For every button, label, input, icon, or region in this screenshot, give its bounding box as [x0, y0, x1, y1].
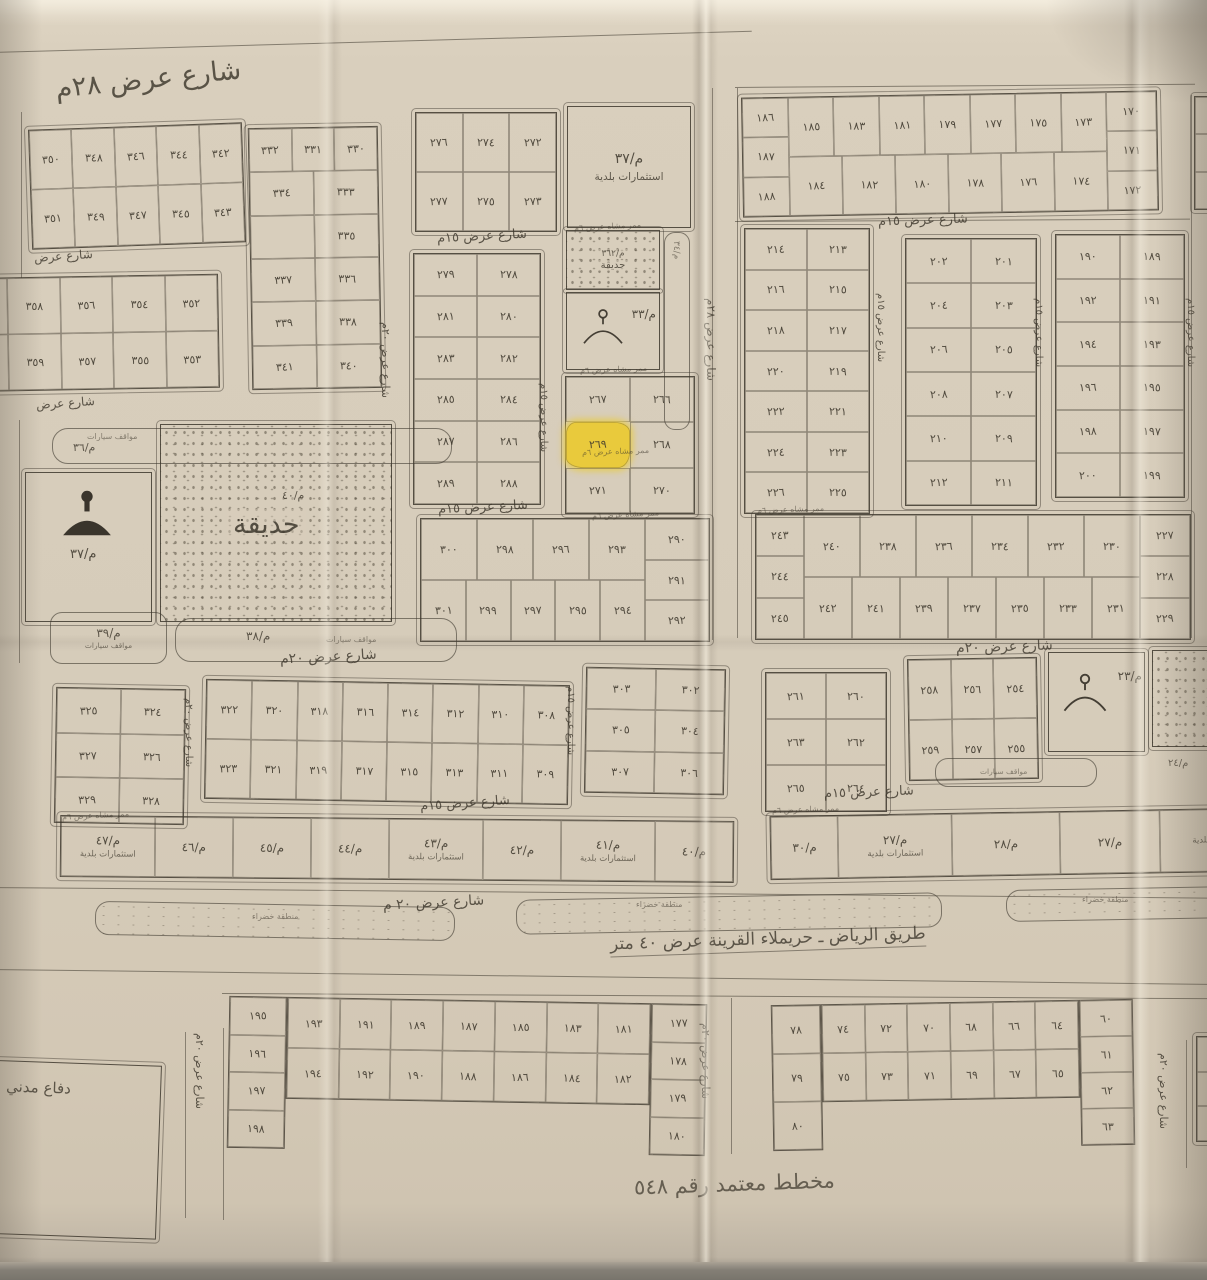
plot: ٣٠٨ [523, 685, 569, 745]
block-row: ٢٠٨٢٠٧ [906, 372, 1036, 416]
plot-number: ٢٢٤ [767, 445, 785, 459]
block-inner: ٢١٤٢١٣٢١٦٢١٥٢١٨٢١٧٢٢٠٢١٩٢٢٢٢٢١٢٢٤٢٢٣٢٢٦٢… [745, 229, 869, 513]
plot-block-edge-ne [1194, 96, 1207, 210]
block-left-col: ١٩٥١٩٦١٩٧١٩٨ [227, 996, 288, 1149]
block-row: ٣٠٥٣٠٤ [586, 709, 725, 753]
plot-number: ٢٥٧ [965, 742, 983, 755]
plot-number: ٢٦٥ [787, 781, 805, 795]
plot: ٧٢ [864, 1004, 908, 1053]
plot: ٢٦١ [766, 673, 826, 719]
block-row: ٣٠٧٣٠٦ [585, 750, 724, 794]
plot-number: ٢١٨ [767, 324, 785, 338]
plot-code: م/٣٧ [615, 151, 643, 167]
plot-number: ٣٣٣ [337, 186, 355, 199]
plot: ٣٢٦ [120, 734, 185, 780]
plot: ٣٢٤ [120, 689, 185, 735]
plot-code: م/٣٣ [632, 307, 656, 321]
plot: ٣١٨ [297, 681, 343, 741]
plot-code: م/٤٧ [96, 833, 120, 847]
plot: ٢١٤ [745, 229, 807, 270]
plot-number: ٢٢١ [829, 405, 847, 419]
plot-number: ٧١ [923, 1069, 935, 1083]
plot-number: ٢٦٣ [787, 735, 805, 749]
street-label: شارع عرض ٢٠م [699, 1023, 712, 1099]
plot: ٢١٧ [807, 310, 869, 351]
plot-number: ٣٣٠ [347, 142, 365, 156]
plot-number: ١٨٧ [757, 151, 775, 164]
block-row [1195, 172, 1207, 209]
plot: ٣٤٣ [201, 182, 245, 242]
block-center: ٢٤٠٢٣٨٢٣٦٢٣٤٢٣٢٢٣٠٢٤٢٢٤١٢٣٩٢٣٧٢٣٥٢٣٣٢٣١ [804, 515, 1140, 639]
plot-code: م/٤٦ [182, 840, 206, 854]
plot: ١٩٤ [1056, 322, 1120, 366]
block-row: ٢٤٠٢٣٨٢٣٦٢٣٤٢٣٢٢٣٠ [804, 515, 1140, 577]
plot-number: ٣٣٥ [338, 229, 356, 242]
plot-number: ٣٢٢ [220, 703, 238, 716]
plot-number: ٣٠٢ [681, 683, 699, 697]
plot: ١٩٣ [287, 998, 340, 1049]
block-row [1197, 1072, 1207, 1107]
plot-number: ١٧٨ [669, 1054, 687, 1068]
plot-number: ٣٠٠ [440, 543, 458, 557]
plot: ٢٨٤ [477, 379, 540, 421]
plot: ٣٣٩ [252, 301, 317, 345]
plot: ١٨١ [879, 95, 925, 155]
mosque-icon [577, 307, 629, 345]
plot-number: ٧٤ [837, 1022, 849, 1036]
plot: ٣٠٢ [655, 669, 725, 712]
plot-number: ٦٧ [1009, 1067, 1021, 1081]
block-row: ٣٢٧٣٢٦ [56, 733, 185, 780]
block-row: ٢٦٣٢٦٢ [766, 719, 886, 765]
plot-number: ١٧٩ [669, 1092, 687, 1105]
plot: ٦١ [1080, 1036, 1133, 1073]
strip-cell: م/٤١استثمارات بلدية [561, 820, 655, 881]
block-row: ٣٠١٢٩٩٢٩٧٢٩٥٢٩٤ [421, 580, 645, 641]
plot-number: ٢٥٨ [921, 683, 939, 697]
block-row: ٢٢٤٢٢٣ [745, 432, 869, 473]
pedestrian-path-label: ممر مشاه عرض ٦م [580, 364, 647, 375]
plot: ٣٣٢ [249, 128, 292, 172]
plot-number: ٢١٢ [929, 476, 947, 490]
plot: ٢٢٠ [745, 351, 807, 392]
street-edge-line [0, 31, 752, 53]
road-median-strip [95, 901, 456, 941]
block-inner: ٣٢٢٣٢٠٣١٨٣١٦٣١٤٣١٢٣١٠٣٠٨٣٢٣٣٢١٣١٩٣١٧٣١٥٣… [205, 680, 569, 804]
plot: ١٧٩ [924, 95, 970, 155]
plot: ٢٣٥ [996, 577, 1044, 639]
plot-block-sw-o: ٣٠٣٣٠٢٣٠٥٣٠٤٣٠٧٣٠٦ [584, 667, 726, 795]
block-row: ١٨٥١٨٣١٨١١٧٩١٧٧١٧٥١٧٣ [788, 92, 1107, 157]
plot-number: ٢٧٥ [477, 195, 495, 209]
street-edge-line [19, 420, 20, 663]
plot-number: ٢٤٤ [771, 570, 789, 584]
plot-number: ٣٤٠ [340, 359, 358, 372]
plot: ٣٢١ [250, 740, 296, 800]
plot: ١٨٣ [833, 96, 879, 156]
plot: ٢٩٥ [555, 580, 600, 641]
plot: ١٩٤ [287, 1048, 340, 1099]
block-row: ٣٣٩٣٣٨ [252, 300, 381, 346]
plot-number: ٢٢٢ [767, 405, 785, 419]
plot: ٢٩١ [645, 560, 709, 601]
plot: ٣١٥ [386, 742, 432, 802]
scanned-plan-photo: م/٣٧ استثمارات بلدية م/٣٦٢ حديقة م/٣٣ م/… [0, 0, 1207, 1280]
plot-number: ١٧٤ [1072, 175, 1090, 188]
street-label: شارع عرض ٢٨م [54, 54, 243, 104]
plot-number: ١٩٠ [407, 1068, 425, 1081]
block-center: ٣٦٠٣٥٨٣٥٦٣٥٤٣٥٢٣٦١٣٥٩٣٥٧٣٥٥٣٥٣ [0, 275, 219, 392]
plot: ٣٠١ [421, 580, 466, 641]
plot-number: ١٩٨ [247, 1122, 265, 1136]
plot: ١٨٢ [597, 1053, 650, 1104]
strip-cell-label: بلدية [1192, 835, 1207, 845]
plot: ١٨٩ [1120, 235, 1184, 279]
plot-number: ٧٢ [880, 1022, 892, 1035]
block-center: ٣٢٢٣٢٠٣١٨٣١٦٣١٤٣١٢٣١٠٣٠٨٣٢٣٣٢١٣١٩٣١٧٣١٥٣… [205, 680, 569, 804]
plot: ٣٥٢ [165, 275, 218, 332]
plot [1197, 1072, 1207, 1107]
plot-number: ٢٣٢ [1047, 539, 1065, 553]
plot: ٧٥ [823, 1053, 867, 1102]
street-label: شارع عرض [34, 247, 94, 265]
plot-block-n-c: ٢٧٦٢٧٤٢٧٢٢٧٧٢٧٥٢٧٣ [415, 112, 557, 232]
block-inner: ٢٤٣٢٤٤٢٤٥٢٤٠٢٣٨٢٣٦٢٣٤٢٣٢٢٣٠٢٤٢٢٤١٢٣٩٢٣٧٢… [756, 515, 1190, 639]
plot: ٣٣٨ [316, 300, 381, 344]
strip-cell-label: استثمارات بلدية [867, 848, 923, 859]
strip-invest-sw: م/٤٧استثمارات بلديةم/٤٦م/٤٥م/٤٤م/٤٣استثم… [60, 815, 735, 883]
mosque-plot-se: م/٢٣ [1048, 652, 1145, 752]
block-center: ٢٧٩٢٧٨٢٨١٢٨٠٢٨٣٢٨٢٢٨٥٢٨٤٢٨٧٢٨٦٢٨٩٢٨٨ [414, 254, 540, 504]
plot-number: ٢٤٢ [819, 601, 837, 615]
plot-number: ٢٩٩ [479, 604, 497, 618]
plot-number: ٢٧٢ [524, 136, 542, 150]
plot: ٢٥٥ [994, 718, 1038, 779]
plot-number: ١٨٠ [913, 177, 931, 191]
plot: ٦٤ [1035, 1001, 1079, 1050]
plot: ١٧٨ [948, 153, 1002, 213]
block-row: ٢٨٣٢٨٢ [414, 337, 540, 379]
plot-block-n-f: ٢٦٧٢٦٦٢٦٩٢٦٨٢٧١٢٧٠ [565, 376, 695, 514]
plot-number: ٣٢٣ [219, 762, 237, 775]
street-edge-line [1186, 1040, 1187, 1168]
street-label: شارع عرض ١٥م [1033, 298, 1044, 367]
plot-number: ١٧٨ [966, 176, 984, 189]
block-center: ٣٥٠٣٤٨٣٤٦٣٤٤٣٤٢٣٥١٣٤٩٣٤٧٣٤٥٣٤٣ [29, 123, 245, 248]
plot-number: ٣٥٦ [77, 298, 95, 312]
road-median-strip [516, 892, 943, 934]
strip-cell: م/٤٧استثمارات بلدية [61, 816, 155, 877]
plot-number: ٢٢٧ [1156, 529, 1174, 543]
plot: ٧٣ [865, 1052, 909, 1101]
street-label: شارع عرض ١٥م [538, 383, 549, 452]
plot: ٣٥٥ [113, 332, 166, 389]
plot-number: ٢٨٦ [499, 435, 517, 449]
block-center: ١٨٥١٨٣١٨١١٧٩١٧٧١٧٥١٧٣١٨٤١٨٢١٨٠١٧٨١٧٦١٧٤ [788, 92, 1108, 216]
plot: ٦٦ [992, 1002, 1036, 1051]
plot-block-e-j: ٢٠٢٢٠١٢٠٤٢٠٣٢٠٦٢٠٥٢٠٨٢٠٧٢١٠٢٠٩٢١٢٢١١ [905, 238, 1037, 506]
block-inner: ٢٦٧٢٦٦٢٦٩٢٦٨٢٧١٢٧٠ [566, 377, 694, 513]
plot: ٢٠٤ [906, 283, 971, 327]
plot-number: ٢٦٢ [847, 735, 865, 749]
plot-code: م/٣٧ [70, 547, 96, 562]
plot-number: ٢٧٨ [499, 268, 517, 282]
block-row: ١٩٢١٩١ [1056, 279, 1184, 323]
plot-number: ٢٥٦ [964, 682, 982, 695]
plot-number: ٢٩٠ [668, 533, 686, 547]
street-edge-line [1191, 95, 1192, 638]
plot-number: ٣٤١ [276, 360, 294, 374]
plot: ٢٧١ [566, 468, 630, 513]
plot [1195, 134, 1207, 171]
plot-number: ١٩٧ [1143, 425, 1161, 439]
street-label: شارع عرض ٢٠م [956, 637, 1053, 656]
street-label: شارع عرض ١٥م [437, 227, 528, 247]
plot-number: ٧٠ [923, 1021, 935, 1035]
plot: ٢١٨ [745, 310, 807, 351]
plot: ٢٣١ [1092, 577, 1140, 639]
mosque-plot-center: م/٣٣ [566, 292, 660, 370]
plot-number: ٢٨٥ [436, 393, 454, 407]
plot: ٢٦٢ [826, 719, 886, 765]
block-center: ٢٦٧٢٦٦٢٦٩٢٦٨٢٧١٢٧٠ [566, 377, 694, 513]
plot-number: ٣٠٧ [611, 765, 629, 778]
plot-number: ٢٥٩ [922, 743, 940, 757]
plot: ١٩٦ [229, 1034, 286, 1072]
block-inner: ٢٧٦٢٧٤٢٧٢٢٧٧٢٧٥٢٧٣ [416, 113, 556, 231]
plot-block-e-i: ٢١٤٢١٣٢١٦٢١٥٢١٨٢١٧٢٢٠٢١٩٢٢٢٢٢١٢٢٤٢٢٣٢٢٦٢… [744, 228, 870, 514]
plot: ٢١١ [971, 461, 1036, 505]
plot-number: ١٨٦ [756, 111, 774, 125]
plot-number: ١٩٢ [1079, 294, 1097, 308]
plot: ٢١٢ [906, 461, 971, 505]
plot-block-nw-a: ٣٥٠٣٤٨٣٤٦٣٤٤٣٤٢٣٥١٣٤٩٣٤٧٣٤٥٣٤٣ [28, 122, 246, 249]
plot: ٢٩٦ [533, 519, 589, 580]
plot-number: ٣٢٩ [78, 793, 96, 806]
plot-number: ١٩٨ [1079, 425, 1097, 439]
plot: ٦٩ [951, 1050, 995, 1099]
plot: ٢٧٢ [509, 113, 556, 172]
plot-number: ١٧١ [1123, 144, 1141, 157]
street-edge-line [712, 88, 713, 640]
parking-label: مواقف سيارات [87, 432, 137, 441]
plot-number: ١٨٢ [860, 178, 878, 191]
strip-cell-label: استثمارات بلدية [80, 849, 136, 859]
block-row: ٧٤٧٢٧٠٦٨٦٦٦٤ [822, 1001, 1079, 1053]
plot-number: ٢٧٧ [430, 195, 448, 209]
block-row: ١٨٤١٨٢١٨٠١٧٨١٧٦١٧٤ [789, 151, 1108, 216]
plot: ٢٤٠ [804, 515, 860, 577]
garden-area-se [1152, 650, 1207, 747]
plot-number: ٣٢٠ [265, 704, 283, 718]
plot: ٢٧٨ [477, 254, 540, 296]
mosque-icon [1057, 671, 1113, 713]
plot: ١٧٣ [1060, 92, 1106, 152]
plot-number: ١٨٥ [802, 120, 820, 134]
block-row: ٢٤٢٢٤١٢٣٩٢٣٧٢٣٥٢٣٣٢٣١ [804, 577, 1140, 639]
plot: ١٨٣ [546, 1002, 599, 1053]
plot: ٢٧٥ [463, 172, 510, 231]
block-inner [1197, 1037, 1207, 1141]
plot: ١٨٨ [743, 176, 790, 216]
plot-block-edge-se [1196, 1036, 1207, 1142]
block-row: ٣٥١٣٤٩٣٤٧٣٤٥٣٤٣ [31, 182, 245, 248]
plot: ٣٥٠ [29, 129, 73, 189]
block-right-col: ٦٠٦١٦٢٦٣ [1079, 999, 1136, 1146]
plot: ٢٣٧ [948, 577, 996, 639]
plot: ١٨٥ [494, 1001, 547, 1052]
plot-number: ٢٣١ [1107, 601, 1125, 615]
block-row: ٢٦١٢٦٠ [766, 673, 886, 719]
plot: ٢٦٦ [630, 377, 694, 422]
plot-code: م/٢٧ [883, 833, 908, 847]
plot: ٢٢١ [807, 391, 869, 432]
plot: ٢٩٨ [477, 519, 533, 580]
block-center: ٧٤٧٢٧٠٦٨٦٦٦٤٧٥٧٣٧١٦٩٦٧٦٥ [821, 1000, 1081, 1102]
mosque-plot-west: م/٣٧ [25, 472, 152, 622]
plot: ١٩٨ [1056, 410, 1120, 454]
plot: ٧٨ [772, 1005, 821, 1054]
plot: ٣٢٠ [251, 681, 297, 741]
plot-number: ٣٣١ [304, 143, 322, 156]
plot: ٦٠ [1080, 1000, 1133, 1037]
plot-number: ٢١١ [994, 476, 1012, 490]
plot: ١٩٦ [1056, 366, 1120, 410]
plot-number: ٢١٠ [929, 432, 947, 446]
plot-number: ٢٣٩ [915, 601, 933, 615]
street-label: شارع عرض ١٥م [565, 686, 576, 755]
plot-code: م/٤٠ [279, 489, 307, 502]
plot: ٣٥٣ [166, 331, 219, 388]
plot-number: ٢١٣ [829, 242, 847, 256]
plot: ٢٣٦ [916, 515, 972, 577]
block-inner: ٣٢٥٣٢٤٣٢٧٣٢٦٣٢٩٣٢٨ [55, 688, 185, 824]
plot: ١٧٦ [1001, 152, 1055, 212]
plot-number: ١٨١ [615, 1022, 633, 1035]
plot: ٣٣٥ [314, 214, 379, 258]
plot-number: ٢٢٣ [829, 445, 847, 459]
block-row: ١٩٤١٩٣ [1056, 322, 1184, 366]
plot-label: استثمارات بلدية [595, 171, 664, 183]
plot: ٢٣٢ [1028, 515, 1084, 577]
plot: ١٧٨ [651, 1042, 706, 1080]
plot-number: ٣٥٤ [130, 297, 148, 310]
plot-number: ٣١٠ [492, 708, 510, 721]
block-row: ٣٥٠٣٤٨٣٤٦٣٤٤٣٤٢ [29, 123, 243, 189]
block-row: ٣٤١٣٤٠ [253, 344, 382, 390]
block-row: ٢٧٦٢٧٤٢٧٢ [416, 113, 556, 172]
block-inner: ٣٣٢٣٣١٣٣٠٣٣٤٣٣٣٣٣٥٣٣٧٣٣٦٣٣٩٣٣٨٣٤١٣٤٠ [249, 127, 382, 389]
plot-number: ١٩٩ [1143, 468, 1161, 482]
plot: ٢٧٤ [463, 113, 510, 172]
block-right-col: ٢٢٧٢٢٨٢٢٩ [1140, 515, 1190, 639]
plot: ٣٤٨ [71, 128, 115, 188]
block-row: ٢٠٠١٩٩ [1056, 453, 1184, 497]
block-row: ٢٠٢٢٠١ [906, 239, 1036, 283]
plot-number: ١٩٤ [1079, 337, 1097, 351]
plot-number: ٢٧٠ [653, 484, 671, 498]
block-row: ٢٥٩٢٥٧٢٥٥ [909, 718, 1038, 780]
plot: ١٩٧ [228, 1072, 285, 1110]
block-inner: ٣٠٣٣٠٢٣٠٥٣٠٤٣٠٧٣٠٦ [585, 668, 725, 794]
plot: ٢٤٣ [756, 515, 804, 556]
block-row: ٢٦٩٢٦٨ [566, 422, 694, 467]
plot-number: ٢٠٥ [994, 343, 1012, 357]
plot-code: م/٢٣ [1118, 669, 1142, 683]
plot: ١٧٢ [1107, 170, 1158, 210]
plot-number: ٢٧٩ [436, 268, 454, 282]
plot: ٢٩٤ [600, 580, 645, 641]
block-row: ٢٠٦٢٠٥ [906, 328, 1036, 372]
plot-number: ٣١٦ [356, 705, 374, 719]
plot-number: ٢٨٤ [499, 393, 517, 407]
plot [250, 215, 315, 259]
photo-edge [0, 1262, 1207, 1280]
plot-number: ٧٣ [881, 1070, 893, 1083]
plot: ٢٠٠ [1056, 453, 1120, 497]
plot: ٣٤٩ [73, 187, 117, 247]
plot-number: ٢٥٥ [1007, 741, 1025, 755]
plot: ٢٨٦ [477, 421, 540, 463]
plot: ٦٥ [1036, 1049, 1080, 1098]
plot-number: ٢٦١ [787, 689, 805, 703]
plot-number: ٢٤٥ [771, 612, 789, 626]
block-center: ١٩٠١٨٩١٩٢١٩١١٩٤١٩٣١٩٦١٩٥١٩٨١٩٧٢٠٠١٩٩ [1056, 235, 1184, 497]
street-edge-line [737, 88, 738, 638]
plot-number: ٣١٢ [446, 707, 464, 721]
plot-number: ٢٤٠ [823, 539, 841, 553]
plot-number: ٢٠٩ [994, 432, 1012, 446]
plot-number: ٢٠٦ [929, 343, 947, 357]
plot-number: ٢٩١ [668, 573, 686, 587]
plot-code: م/٣٤ [671, 241, 681, 259]
plot: ٣٣٠ [334, 127, 377, 171]
plot: ٣٣٤ [249, 171, 314, 215]
plot-number: ١٨٢ [614, 1072, 632, 1085]
plot-code: م/٢٤ [1168, 758, 1188, 769]
plot-number: ٢٧٣ [524, 195, 542, 209]
block-row: ٢٨٥٢٨٤ [414, 379, 540, 421]
plot: ٢٤٥ [756, 598, 804, 639]
block-row: ٢٢٢٢٢١ [745, 391, 869, 432]
block-inner: ١٩٠١٨٩١٩٢١٩١١٩٤١٩٣١٩٦١٩٥١٩٨١٩٧٢٠٠١٩٩ [1056, 235, 1184, 497]
plot-number: ٢٠٧ [994, 387, 1012, 401]
plot: ١٨٦ [493, 1051, 546, 1102]
plot: ١٧٥ [1015, 93, 1061, 153]
plot: ٢١٣ [807, 229, 869, 270]
plot: ٣٠٣ [586, 668, 656, 711]
street-label: شارع عرض ١٥م [875, 293, 886, 362]
strip-cell: م/٢٨ [952, 812, 1060, 876]
plot-code: م/٢٧ [1098, 835, 1123, 849]
plot-number: ٣٣٦ [338, 272, 356, 285]
plot: ٣٠٧ [585, 750, 655, 793]
block-inner: ٧٨٧٩٨٠٧٤٧٢٧٠٦٨٦٦٦٤٧٥٧٣٧١٦٩٦٧٦٥٦٠٦١٦٢٦٣ [771, 999, 1135, 1151]
plot-number: ٢٢٦ [767, 486, 785, 500]
plot-number: ٢٨٧ [436, 435, 454, 449]
plot-number: ٢٣٨ [879, 539, 897, 553]
plot-code: م/٣٩ [96, 626, 120, 640]
plot: ١٨٩ [391, 1000, 444, 1051]
plot-number: ٣١١ [491, 767, 509, 780]
plot: ٣٥٤ [112, 276, 165, 333]
plot-number: ٣٠٤ [680, 725, 698, 739]
block-left-col: ٧٨٧٩٨٠ [771, 1004, 824, 1151]
plot: ١٨٧ [443, 1001, 496, 1052]
plot-number: ٢١٤ [767, 242, 785, 256]
plot-number: ٣٢٥ [80, 704, 98, 717]
block-inner: ٢٧٩٢٧٨٢٨١٢٨٠٢٨٣٢٨٢٢٨٥٢٨٤٢٨٧٢٨٦٢٨٩٢٨٨ [414, 254, 540, 504]
